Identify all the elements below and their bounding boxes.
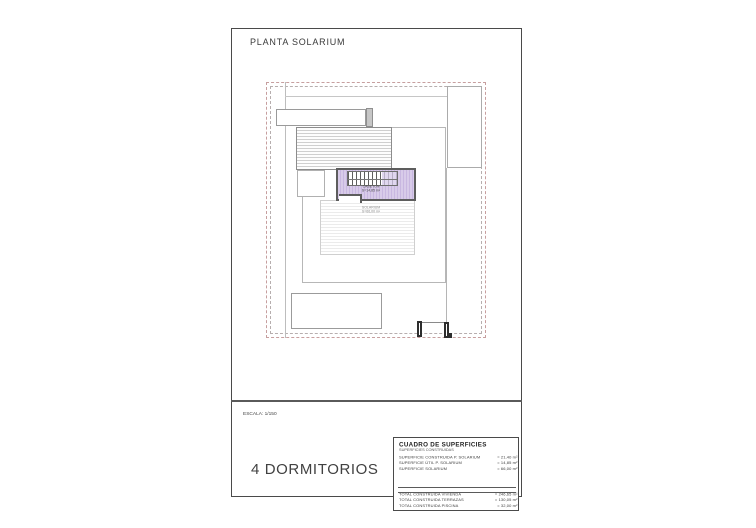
- gate-post-foot: [448, 333, 452, 338]
- drawing-page: PLANTA SOLARIUM CASETON S=14,85 m² SOLAR…: [0, 0, 756, 528]
- chimney-rect: [366, 108, 373, 127]
- stair-room-label: CASETON S=14,85 m²: [341, 185, 401, 193]
- terrace-edge-line: [285, 96, 447, 97]
- stair-room-label-area: S=14,85 m²: [341, 189, 401, 193]
- stair-rail-line: [348, 179, 397, 180]
- row-label: TOTAL CONSTRUIDA PISCINA: [399, 503, 458, 509]
- scale-label: ESCALA: 1/150: [243, 411, 277, 416]
- solarium-label: SOLARIUM S=66,00 m²: [341, 206, 401, 214]
- surfaces-table: CUADRO DE SUPERFICIES SUPERFICIES CONSTR…: [393, 437, 519, 511]
- surfaces-group: SUPERFICIE CONSTRUIDA P. SOLARIUM = 21,4…: [399, 455, 518, 472]
- gate-post-left: [417, 321, 422, 337]
- surfaces-table-title: CUADRO DE SUPERFICIES: [399, 441, 487, 448]
- row-value: = 32,00 m²: [497, 503, 517, 509]
- roof-hatch-area: [296, 127, 392, 170]
- bedrooms-label: 4 DORMITORIOS: [251, 461, 379, 478]
- totals-group: TOTAL CONSTRUIDA VIVIENDA = 246,65 m² TO…: [399, 492, 518, 509]
- side-volume-rect: [297, 170, 325, 197]
- table-row: SUPERFICIE SOLARIUM = 66,00 m²: [399, 466, 518, 472]
- neighbor-structure-rect: [447, 86, 482, 168]
- row-value: = 66,00 m²: [497, 466, 517, 472]
- plan-title: PLANTA SOLARIUM: [250, 37, 345, 47]
- entrance-gate-line: [421, 322, 445, 323]
- table-row: TOTAL CONSTRUIDA PISCINA = 32,00 m²: [399, 503, 518, 509]
- row-label: SUPERFICIE SOLARIUM: [399, 466, 447, 472]
- staircase: [347, 171, 398, 186]
- upper-terrace-rect: [276, 109, 366, 126]
- surfaces-table-subtitle: SUPERFICIES CONSTRUIDAS: [399, 448, 454, 452]
- title-block-divider: [231, 400, 522, 402]
- pool-rect: [291, 293, 382, 329]
- stair-room-door-opening: [339, 194, 362, 203]
- footprint-right-extension-line: [446, 168, 447, 338]
- solarium-label-area: S=66,00 m²: [341, 210, 401, 214]
